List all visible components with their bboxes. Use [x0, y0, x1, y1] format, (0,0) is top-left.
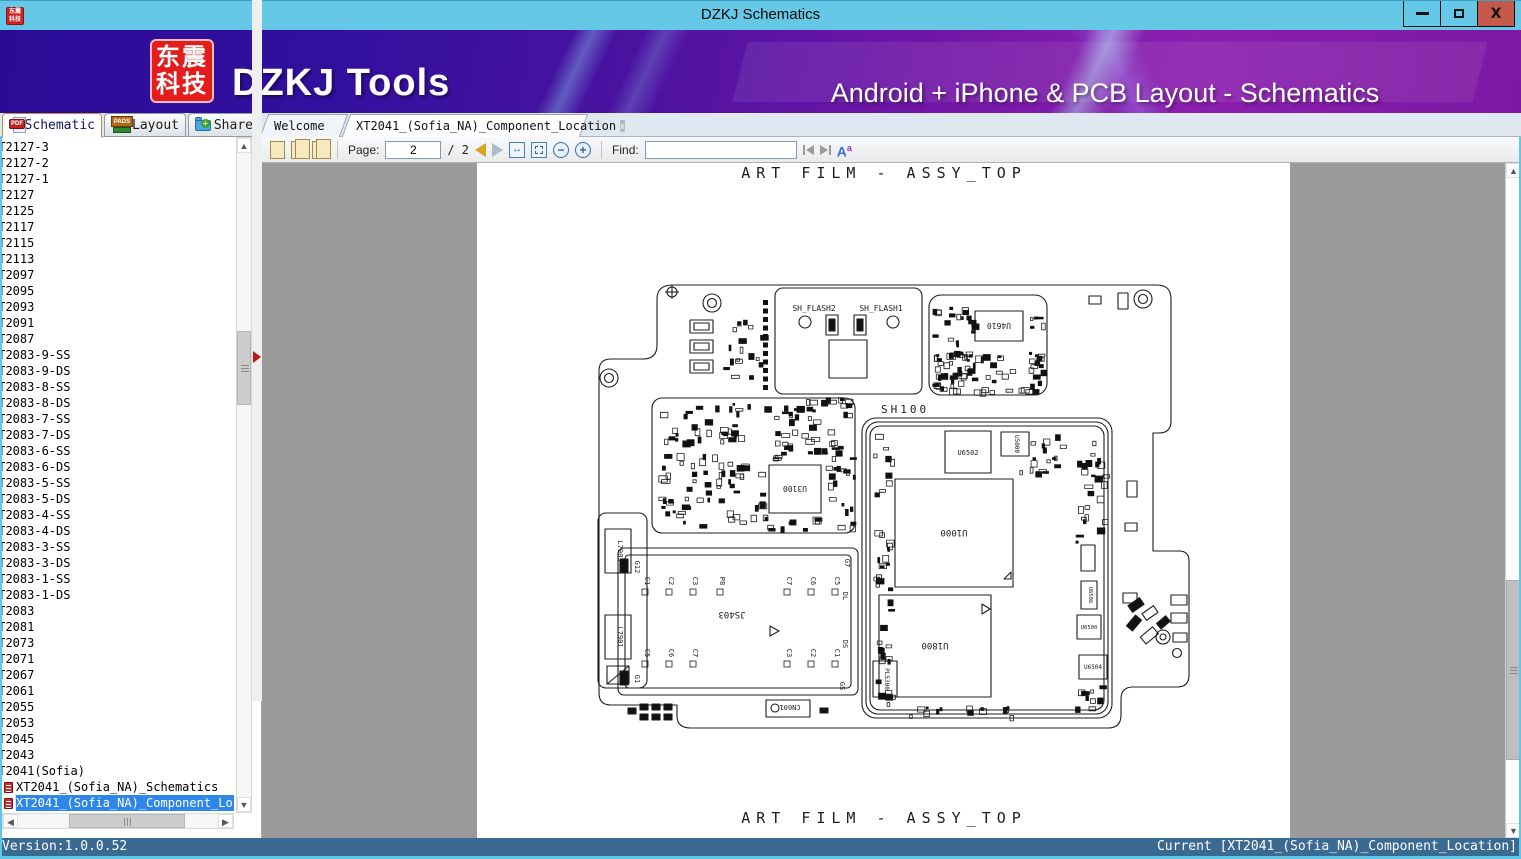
- single-page-icon[interactable]: [270, 141, 285, 159]
- close-icon: X: [1491, 6, 1502, 22]
- sidebar-item-label: XT2125: [2, 203, 34, 219]
- sidebar: XT2127-3XT2127-2XT2127-1XT2127XT2125XT21…: [0, 137, 262, 838]
- sidebar-item-label: XT2083-7-SS: [2, 411, 70, 427]
- label-l7901: L7901: [616, 626, 624, 647]
- sidebar-item[interactable]: XT2061: [2, 683, 234, 699]
- sidebar-item-label: XT2127-3: [2, 139, 49, 155]
- sidebar-item-label: XT2083-4-SS: [2, 507, 70, 523]
- sidebar-item-label: XT2093: [2, 299, 34, 315]
- brand-logo-text-2: 科技: [156, 71, 208, 98]
- sidebar-item[interactable]: XT2127-2: [2, 155, 234, 171]
- tab-schematic[interactable]: PDF Schematic: [2, 113, 102, 138]
- sidebar-item-label: XT2083-1-SS: [2, 571, 70, 587]
- connector-pin-label: C2: [809, 649, 817, 657]
- pcb-diagram: ART FILM - ASSY_TOP ART FILM - ASSY_TOP: [477, 163, 1290, 838]
- sidebar-item-label: XT2045: [2, 731, 34, 747]
- sidebar-item-label: XT2071: [2, 651, 34, 667]
- doc-tab-close-icon[interactable]: x: [620, 120, 625, 132]
- scroll-up-icon[interactable]: ▲: [237, 138, 251, 153]
- find-previous-icon[interactable]: [803, 145, 814, 155]
- scroll-down-icon[interactable]: ▼: [237, 797, 251, 812]
- pcb-title-bottom: ART FILM - ASSY_TOP: [741, 809, 1027, 827]
- sidebar-item-label: XT2083-4-DS: [2, 523, 70, 539]
- sidebar-item-label: XT2113: [2, 251, 34, 267]
- sidebar-item[interactable]: XT2071: [2, 651, 234, 667]
- sidebar-item[interactable]: XT2055: [2, 699, 234, 715]
- sidebar-item[interactable]: XT2053: [2, 715, 234, 731]
- sidebar-item-label: XT2083-3-SS: [2, 539, 70, 555]
- label-dl: DL: [841, 592, 849, 600]
- fit-width-icon[interactable]: ↔: [509, 142, 525, 158]
- sidebar-item-label: XT2083-9-SS: [2, 347, 70, 363]
- sidebar-item-label: XT2083: [2, 603, 34, 619]
- sidebar-item-label: XT2127-1: [2, 171, 49, 187]
- sidebar-item-label: XT2061: [2, 683, 34, 699]
- sidebar-item[interactable]: XT2083-4-DS: [2, 523, 234, 539]
- sidebar-item-label: XT2083-5-SS: [2, 475, 70, 491]
- sidebar-item-label: XT2041_(Sofia_NA)_Component_Location: [16, 795, 234, 811]
- connector-pin-label: C1: [643, 577, 651, 585]
- sidebar-item-label: XT2087: [2, 331, 34, 347]
- label-g1: G1: [633, 675, 641, 683]
- share-folder-icon: +: [195, 117, 210, 133]
- zoom-in-icon[interactable]: +: [575, 142, 591, 158]
- facing-pages-icon[interactable]: [291, 141, 306, 159]
- doc-tab-component-location[interactable]: XT2041_(Sofia_NA)_Component_Location x: [346, 114, 584, 137]
- pdf-viewer: Page: / 2 ↔ − + Find: Aa ART FILM - ASSY…: [262, 137, 1521, 838]
- sidebar-item-label: XT2095: [2, 283, 34, 299]
- tab-share-label: Share: [214, 118, 253, 133]
- sidebar-item[interactable]: XT2041(Sofia): [2, 763, 234, 779]
- label-u6502: U6502: [957, 449, 978, 457]
- sidebar-item-label: XT2083-5-DS: [2, 491, 70, 507]
- sidebar-item[interactable]: XT2115: [2, 235, 234, 251]
- scrollbar-thumb[interactable]: [237, 331, 251, 405]
- sidebar-item[interactable]: XT2041_(Sofia_NA)_Schematics: [2, 779, 234, 795]
- label-cn601: CN601: [779, 703, 800, 711]
- sidebar-item-label: XT2083-6-DS: [2, 459, 70, 475]
- sidebar-item[interactable]: XT2083-6-DS: [2, 459, 234, 475]
- label-u3100: U3100: [783, 484, 807, 493]
- sidebar-item[interactable]: XT2083-9-DS: [2, 363, 234, 379]
- sidebar-item[interactable]: XT2067: [2, 667, 234, 683]
- find-label: Find:: [612, 143, 639, 157]
- tab-schematic-label: Schematic: [25, 118, 95, 133]
- sidebar-item[interactable]: XT2127-3: [2, 139, 234, 155]
- window-title: DZKJ Schematics: [0, 6, 1521, 23]
- label-g7: G7: [843, 559, 851, 567]
- doc-tab-component-location-label: XT2041_(Sofia_NA)_Component_Location: [356, 119, 616, 133]
- label-u4610: U4610: [987, 321, 1011, 330]
- banner: 东震 科技 DZKJ Tools Android + iPhone & PCB …: [0, 30, 1521, 113]
- sidebar-item-label: XT2041(Sofia): [2, 763, 85, 779]
- label-u5000: U5000: [1013, 435, 1020, 453]
- label-sh-flash2: SH_FLASH2: [792, 304, 836, 313]
- title-bar: 东震 科技 DZKJ Schematics X: [0, 0, 1521, 30]
- sidebar-item-label: XT2127: [2, 187, 34, 203]
- connector-pin-label: P8: [718, 577, 726, 585]
- label-g12: G12: [633, 561, 641, 574]
- pdf-page: ART FILM - ASSY_TOP ART FILM - ASSY_TOP: [477, 163, 1290, 838]
- tab-bar: PDF Schematic PADS Layout + Share Welcom…: [0, 113, 1521, 137]
- sidebar-item-label: XT2091: [2, 315, 34, 331]
- sidebar-item-label: XT2041_(Sofia_NA)_Schematics: [16, 779, 218, 795]
- pdf-icon: [4, 782, 13, 793]
- font-case-icon[interactable]: Aa: [837, 141, 852, 159]
- sidebar-item[interactable]: XT2083-3-SS: [2, 539, 234, 555]
- sidebar-item[interactable]: XT2081: [2, 619, 234, 635]
- label-u6506: U6506: [1087, 587, 1093, 604]
- sidebar-item-label: XT2083-3-DS: [2, 555, 70, 571]
- brand-logo: 东震 科技: [150, 39, 214, 103]
- label-sh-flash1: SH_FLASH1: [859, 304, 903, 313]
- label-u6500: U6500: [1081, 625, 1098, 631]
- pdf-canvas[interactable]: ART FILM - ASSY_TOP ART FILM - ASSY_TOP: [262, 163, 1521, 838]
- page-total: / 2: [447, 143, 469, 157]
- sidebar-item[interactable]: XT2045: [2, 731, 234, 747]
- sidebar-item-label: XT2053: [2, 715, 34, 731]
- connector-shield: [618, 548, 858, 695]
- splitter-collapse-icon[interactable]: [253, 351, 261, 363]
- sidebar-item[interactable]: XT2041_(Sofia_NA)_Component_Location: [2, 795, 234, 811]
- status-bar: Version:1.0.0.52 Current [XT2041_(Sofia_…: [0, 838, 1521, 856]
- pdf-icon: PDF: [9, 117, 21, 134]
- sidebar-item[interactable]: XT2083-7-DS: [2, 427, 234, 443]
- connector-pin-label: C3: [691, 577, 699, 585]
- sidebar-item[interactable]: XT2083-9-SS: [2, 347, 234, 363]
- doc-tab-welcome-label: Welcome: [274, 119, 325, 133]
- minimize-icon: [1416, 12, 1429, 15]
- brand-logo-text-1: 东震: [156, 44, 208, 71]
- find-next-icon[interactable]: [820, 145, 831, 155]
- schematic-file-list: XT2127-3XT2127-2XT2127-1XT2127XT2125XT21…: [2, 139, 234, 813]
- sidebar-item[interactable]: XT2127-1: [2, 171, 234, 187]
- window-border: [0, 137, 2, 856]
- label-js403: JS403: [718, 609, 745, 619]
- current-file-label: Current [XT2041_(Sofia_NA)_Component_Loc…: [1157, 838, 1517, 856]
- sidebar-item[interactable]: XT2091: [2, 315, 234, 331]
- tab-layout-label: Layout: [132, 118, 179, 133]
- label-pl5300: PL5300: [883, 668, 890, 690]
- sidebar-item[interactable]: XT2083-8-SS: [2, 379, 234, 395]
- sidebar-item[interactable]: XT2083-7-SS: [2, 411, 234, 427]
- banner-tagline: Android + iPhone & PCB Layout - Schemati…: [700, 78, 1510, 109]
- sidebar-item-label: XT2117: [2, 219, 34, 235]
- label-sh100: SH100: [881, 403, 929, 416]
- app-window: 东震 科技 DZKJ Schematics X 东震 科技 DZKJ Tools…: [0, 0, 1521, 859]
- doc-tab-welcome[interactable]: Welcome: [264, 114, 344, 137]
- sidebar-item-label: XT2067: [2, 667, 34, 683]
- pads-icon: PADS: [111, 116, 128, 134]
- label-u1800: U1800: [921, 640, 948, 650]
- sidebar-item-label: XT2081: [2, 619, 34, 635]
- sidebar-item[interactable]: XT2083: [2, 603, 234, 619]
- pdf-icon: [4, 798, 13, 809]
- connector-pin-label: C5: [643, 649, 651, 657]
- find-input[interactable]: [645, 141, 797, 159]
- connector-pin-label: C5: [833, 577, 841, 585]
- label-l7903: L7903: [616, 540, 624, 561]
- sidebar-item[interactable]: XT2083-1-DS: [2, 587, 234, 603]
- book-view-icon[interactable]: [312, 141, 327, 159]
- sidebar-item-label: XT2073: [2, 635, 34, 651]
- sidebar-item[interactable]: XT2125: [2, 203, 234, 219]
- sidebar-item-label: XT2083-8-DS: [2, 395, 70, 411]
- sidebar-item[interactable]: XT2113: [2, 251, 234, 267]
- brand-title: DZKJ Tools: [232, 62, 450, 105]
- sidebar-item-label: XT2083-7-DS: [2, 427, 70, 443]
- version-label: Version:1.0.0.52: [2, 838, 127, 856]
- connector-pin-label: C6: [667, 649, 675, 657]
- scrollbar-thumb[interactable]: [69, 814, 185, 828]
- label-u1000: U1000: [940, 527, 967, 537]
- viewer-toolbar: Page: / 2 ↔ − + Find: Aa: [262, 137, 1521, 163]
- sidebar-item[interactable]: XT2097: [2, 267, 234, 283]
- tab-layout[interactable]: PADS Layout: [104, 113, 186, 137]
- sidebar-item[interactable]: XT2083-3-DS: [2, 555, 234, 571]
- fit-page-icon[interactable]: [531, 142, 547, 158]
- sidebar-item[interactable]: XT2087: [2, 331, 234, 347]
- minimize-button[interactable]: [1403, 1, 1441, 27]
- sidebar-item[interactable]: XT2083-4-SS: [2, 507, 234, 523]
- sidebar-item[interactable]: XT2083-5-SS: [2, 475, 234, 491]
- sidebar-item-label: XT2043: [2, 747, 34, 763]
- sidebar-item[interactable]: XT2083-5-DS: [2, 491, 234, 507]
- maximize-button[interactable]: [1440, 1, 1478, 27]
- zoom-out-icon[interactable]: −: [553, 142, 569, 158]
- label-u6504: U6504: [1084, 664, 1102, 671]
- sidebar-item[interactable]: XT2117: [2, 219, 234, 235]
- connector-pin-label: C7: [785, 577, 793, 585]
- next-page-icon[interactable]: [492, 143, 503, 157]
- sidebar-item[interactable]: XT2043: [2, 747, 234, 763]
- label-ds: DS: [841, 640, 849, 648]
- sidebar-item-label: XT2055: [2, 699, 34, 715]
- scroll-right-icon[interactable]: ▶: [218, 814, 233, 828]
- sidebar-item[interactable]: XT2093: [2, 299, 234, 315]
- connector-pin-label: C2: [667, 577, 675, 585]
- close-button[interactable]: X: [1477, 1, 1515, 27]
- connector-pin-label: C1: [833, 649, 841, 657]
- page-number-input[interactable]: [385, 141, 441, 159]
- sidebar-item-label: XT2115: [2, 235, 34, 251]
- sidebar-horizontal-scrollbar[interactable]: ◀ ▶: [2, 813, 234, 829]
- page-label: Page:: [348, 143, 379, 157]
- sidebar-item[interactable]: XT2127: [2, 187, 234, 203]
- sidebar-item-label: XT2097: [2, 267, 34, 283]
- sidebar-item-label: XT2083-8-SS: [2, 379, 70, 395]
- sidebar-item-label: XT2083-1-DS: [2, 587, 70, 603]
- sidebar-item[interactable]: XT2083-8-DS: [2, 395, 234, 411]
- connector-pin-label: C3: [785, 649, 793, 657]
- connector-pin-label: C7: [691, 649, 699, 657]
- sidebar-vertical-scrollbar[interactable]: ▲ ▼: [236, 137, 252, 813]
- sh100-shield: [862, 418, 1112, 718]
- sidebar-item-label: XT2083-6-SS: [2, 443, 70, 459]
- label-gs: GS: [838, 682, 846, 690]
- sidebar-item[interactable]: XT2083-1-SS: [2, 571, 234, 587]
- sidebar-item[interactable]: XT2083-6-SS: [2, 443, 234, 459]
- connector-pin-label: C6: [809, 577, 817, 585]
- sidebar-item[interactable]: XT2073: [2, 635, 234, 651]
- maximize-icon: [1454, 9, 1464, 18]
- previous-page-icon[interactable]: [475, 143, 486, 157]
- pcb-title-top: ART FILM - ASSY_TOP: [741, 164, 1027, 182]
- sidebar-item[interactable]: XT2095: [2, 283, 234, 299]
- sidebar-item-label: XT2127-2: [2, 155, 49, 171]
- sidebar-item-label: XT2083-9-DS: [2, 363, 70, 379]
- shield-top-right: [929, 295, 1047, 395]
- scroll-left-icon[interactable]: ◀: [3, 814, 18, 828]
- tab-share[interactable]: + Share: [188, 113, 260, 137]
